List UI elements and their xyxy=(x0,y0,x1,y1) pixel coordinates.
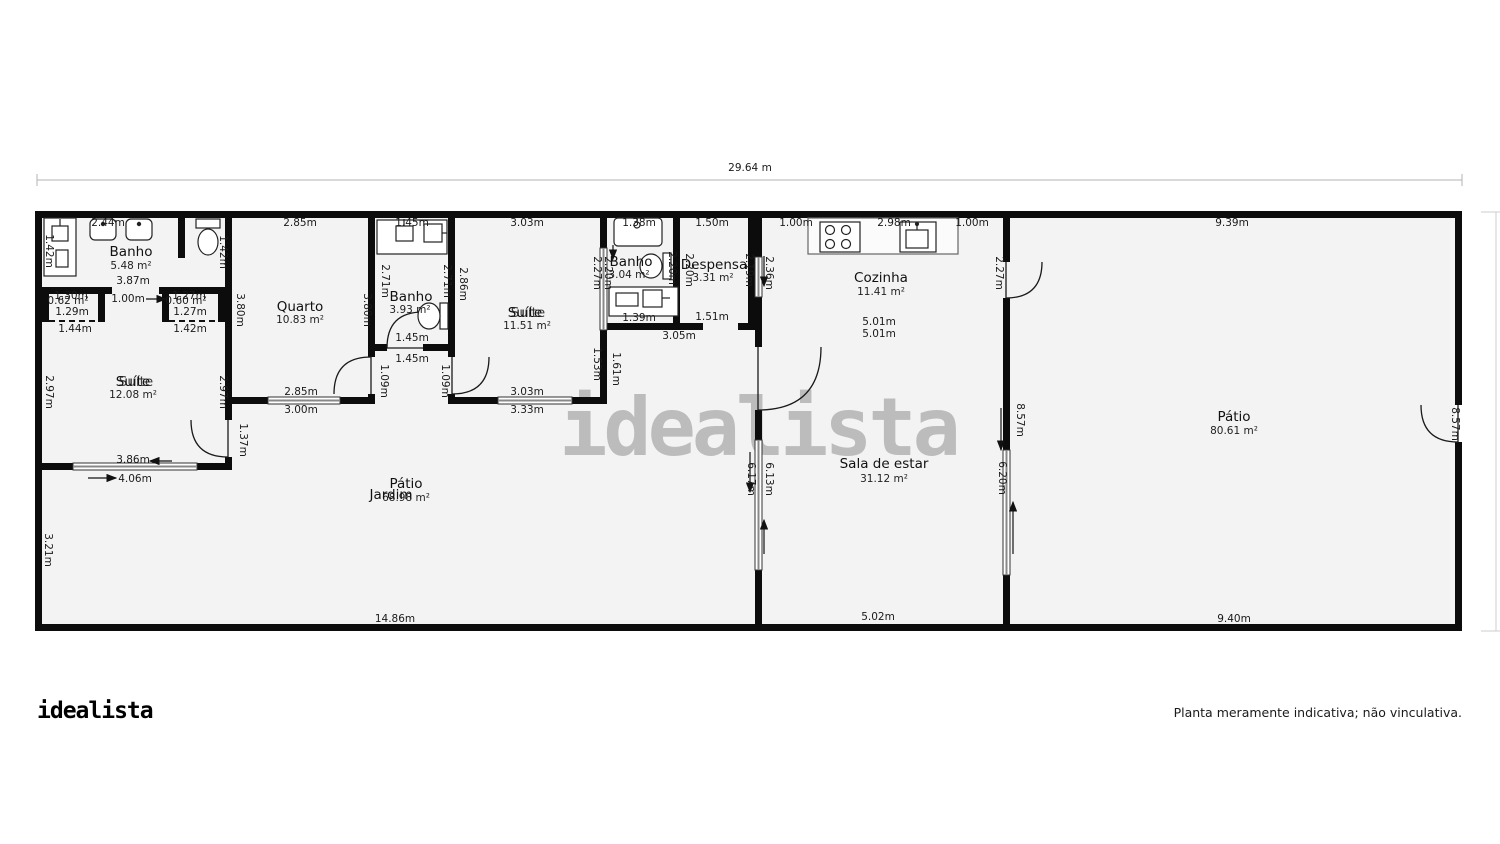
svg-text:3.33m: 3.33m xyxy=(510,404,544,416)
svg-text:1.44m: 1.44m xyxy=(58,323,92,335)
idealista-logo: idealista xyxy=(37,698,153,724)
svg-text:Sala de estar: Sala de estar xyxy=(840,456,929,472)
svg-text:3.93 m²: 3.93 m² xyxy=(389,304,430,316)
svg-text:5.01m: 5.01m xyxy=(862,316,896,328)
floorplan-page: 29.64 m idealista xyxy=(0,0,1500,844)
svg-text:1.09m: 1.09m xyxy=(439,364,451,398)
svg-text:3.86m: 3.86m xyxy=(116,454,150,466)
stove-icon xyxy=(820,222,860,252)
svg-text:5.02m: 5.02m xyxy=(861,611,895,623)
svg-text:3.00m: 3.00m xyxy=(284,404,318,416)
svg-text:1.00m: 1.00m xyxy=(111,293,145,305)
svg-text:Suíte: Suíte xyxy=(116,374,150,390)
svg-text:2.20m: 2.20m xyxy=(666,251,678,285)
svg-text:12.08 m²: 12.08 m² xyxy=(109,389,157,401)
svg-text:1.42m: 1.42m xyxy=(217,235,229,269)
svg-text:1.38m: 1.38m xyxy=(622,217,656,229)
svg-text:6.20m: 6.20m xyxy=(996,461,1008,495)
window xyxy=(268,397,340,404)
svg-text:3.04 m²: 3.04 m² xyxy=(608,269,649,281)
svg-text:3.80m: 3.80m xyxy=(234,293,246,327)
svg-text:1.37m: 1.37m xyxy=(237,423,249,457)
svg-text:2.44m: 2.44m xyxy=(91,217,125,229)
floorplan-drawing: 29.64 m idealista xyxy=(0,0,1500,844)
svg-text:3.05m: 3.05m xyxy=(662,330,696,342)
svg-text:2.36m: 2.36m xyxy=(763,256,775,290)
svg-text:Jardim: Jardim xyxy=(368,487,412,503)
svg-text:2.27m: 2.27m xyxy=(591,256,603,290)
svg-text:5.01m: 5.01m xyxy=(862,328,896,340)
svg-text:2.97m: 2.97m xyxy=(217,375,229,409)
svg-text:Banho: Banho xyxy=(610,254,653,270)
window xyxy=(755,440,762,570)
svg-text:2.98m: 2.98m xyxy=(877,217,911,229)
svg-text:4.06m: 4.06m xyxy=(118,473,152,485)
svg-text:6.17m: 6.17m xyxy=(745,462,757,496)
svg-text:3.87m: 3.87m xyxy=(116,275,150,287)
svg-text:3.03m: 3.03m xyxy=(510,217,544,229)
svg-text:3.80m: 3.80m xyxy=(361,293,373,327)
svg-text:Pátio: Pátio xyxy=(1217,409,1250,425)
svg-text:6.13m: 6.13m xyxy=(763,462,775,496)
sink-icon xyxy=(126,219,152,240)
svg-text:2.86m: 2.86m xyxy=(457,267,469,301)
svg-text:2.97m: 2.97m xyxy=(43,375,55,409)
svg-text:Suíte: Suíte xyxy=(508,305,542,321)
svg-text:1.45m: 1.45m xyxy=(395,332,429,344)
svg-text:1.42m: 1.42m xyxy=(173,323,207,335)
svg-text:2.27m: 2.27m xyxy=(993,256,1005,290)
svg-text:1.00m: 1.00m xyxy=(955,217,989,229)
svg-text:Despensa: Despensa xyxy=(681,257,747,273)
svg-text:1.09m: 1.09m xyxy=(378,364,390,398)
svg-text:10.83 m²: 10.83 m² xyxy=(276,314,324,326)
svg-text:9.39m: 9.39m xyxy=(1215,217,1249,229)
svg-text:Quarto: Quarto xyxy=(277,299,324,315)
svg-text:8.57m: 8.57m xyxy=(1014,403,1026,437)
svg-text:11.41 m²: 11.41 m² xyxy=(857,286,905,298)
svg-text:2.85m: 2.85m xyxy=(284,386,318,398)
svg-text:14.86m: 14.86m xyxy=(375,613,415,625)
svg-text:1.39m: 1.39m xyxy=(622,312,656,324)
toilet-icon xyxy=(196,219,220,255)
svg-text:1.00m: 1.00m xyxy=(779,217,813,229)
svg-text:1.50m: 1.50m xyxy=(695,217,729,229)
window xyxy=(498,397,572,404)
total-width-label: 29.64 m xyxy=(728,162,772,174)
svg-text:1.51m: 1.51m xyxy=(695,311,729,323)
svg-text:Cozinha: Cozinha xyxy=(854,270,908,286)
svg-text:80.61 m²: 80.61 m² xyxy=(1210,425,1258,437)
disclaimer-text: Planta meramente indicativa; não vincula… xyxy=(1174,705,1462,720)
svg-text:Banho: Banho xyxy=(110,244,153,260)
svg-text:Banho: Banho xyxy=(390,289,433,305)
svg-text:1.53m: 1.53m xyxy=(591,347,603,381)
svg-text:3.21m: 3.21m xyxy=(42,533,54,567)
svg-text:1.42m: 1.42m xyxy=(43,234,55,268)
svg-text:1.27m: 1.27m xyxy=(173,306,207,318)
svg-text:1.29m: 1.29m xyxy=(55,306,89,318)
svg-text:5.48 m²: 5.48 m² xyxy=(110,260,151,272)
svg-text:11.51 m²: 11.51 m² xyxy=(503,320,551,332)
window xyxy=(755,257,762,297)
svg-text:9.40m: 9.40m xyxy=(1217,613,1251,625)
svg-text:3.31 m²: 3.31 m² xyxy=(692,272,733,284)
svg-text:31.12 m²: 31.12 m² xyxy=(860,473,908,485)
svg-text:3.03m: 3.03m xyxy=(510,386,544,398)
svg-text:2.85m: 2.85m xyxy=(283,217,317,229)
svg-text:1.45m: 1.45m xyxy=(395,353,429,365)
svg-text:8.57m: 8.57m xyxy=(1449,407,1461,441)
svg-text:1.61m: 1.61m xyxy=(610,352,622,386)
svg-text:2.71m: 2.71m xyxy=(441,264,453,298)
svg-text:1.45m: 1.45m xyxy=(395,217,429,229)
